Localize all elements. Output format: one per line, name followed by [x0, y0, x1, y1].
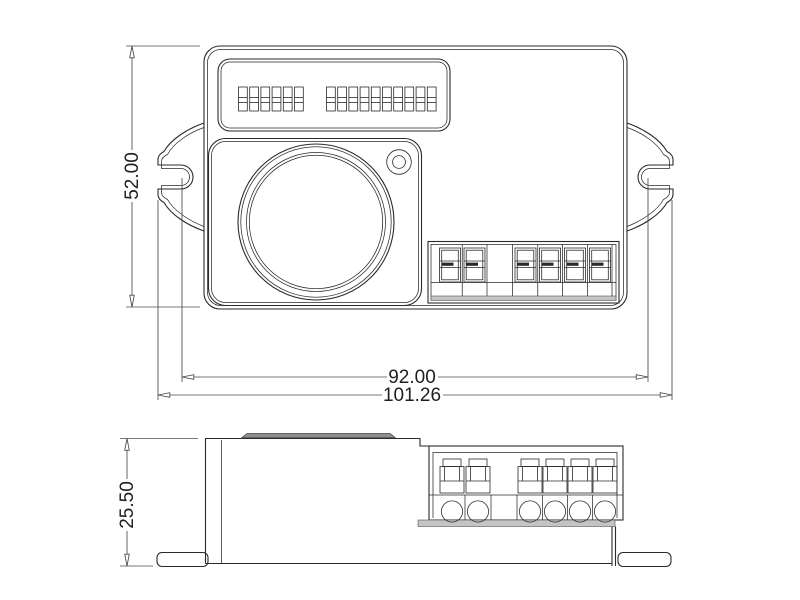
- sensor-lens-outer-circle-inner: [241, 147, 391, 297]
- dip-switch: [416, 87, 425, 111]
- side-top-gasket: [242, 434, 395, 438]
- terminal-block-inner: [431, 245, 616, 301]
- side-push-terminals: [440, 459, 617, 493]
- terminal-block-shade-strip: [431, 296, 616, 301]
- push-terminal-body: [440, 467, 464, 494]
- push-terminal-body: [593, 467, 617, 494]
- mounting-ear-left-inner: [162, 128, 205, 227]
- side-terminal-dividers: [465, 495, 593, 520]
- push-terminal-cap: [521, 459, 539, 467]
- body-outline: [204, 46, 627, 309]
- push-terminal-body: [568, 467, 592, 494]
- side-wire-holes: [441, 501, 615, 522]
- mounting-flange-left: [157, 553, 208, 567]
- wire-entry-hole: [519, 501, 540, 522]
- push-terminal-cap: [571, 459, 589, 467]
- side-right-wall: [612, 527, 616, 567]
- dip-switch: [383, 87, 392, 111]
- dip-switch: [283, 87, 292, 111]
- dip-switch: [272, 87, 281, 111]
- push-terminal-body: [543, 467, 567, 494]
- dip-switch: [349, 87, 358, 111]
- dimension-drawing-page: 52.00 92.00 101.26: [0, 0, 800, 600]
- sensor-lens-inner-circle: [247, 153, 386, 292]
- dip-switch-panel-inner: [221, 62, 447, 128]
- front-view: [158, 46, 673, 309]
- dip-switch: [405, 87, 414, 111]
- dip-switch: [327, 87, 336, 111]
- dip-switch: [394, 87, 403, 111]
- wire-entry-hole: [594, 501, 615, 522]
- dimension-label-overall-width: 101.26: [383, 385, 441, 406]
- push-terminal-cap: [546, 459, 564, 467]
- wire-entry-hole: [467, 501, 488, 522]
- mounting-ear-left: [158, 123, 204, 231]
- wire-entry-hole: [441, 501, 462, 522]
- side-body-left-and-top-edge: [206, 439, 430, 564]
- wire-entry-hole: [569, 501, 590, 522]
- dimension-label-front-height: 52.00: [122, 152, 143, 200]
- terminal-clamps: [440, 248, 611, 282]
- sensor-lens-outer-circle: [238, 144, 394, 300]
- side-terminal-housing: [429, 446, 623, 520]
- dimension-drawing-canvas: 52.00 92.00 101.26: [0, 0, 800, 600]
- led-indicator-inner: [393, 156, 406, 169]
- sensor-lens-inner-circle-inner: [249, 155, 382, 288]
- push-terminal-cap: [443, 459, 461, 467]
- dimension-label-side-height: 25.50: [117, 481, 138, 529]
- mounting-ear-right: [627, 123, 673, 231]
- push-terminal-body: [518, 467, 542, 494]
- dip-switch: [250, 87, 259, 111]
- dip-switch: [371, 87, 380, 111]
- dimension-mounting-width: 92.00: [182, 178, 648, 388]
- side-view: [157, 434, 671, 567]
- dip-switch: [338, 87, 347, 111]
- dip-switch-panel: [218, 59, 450, 131]
- push-terminal-body: [466, 467, 490, 494]
- dimension-side-height: 25.50: [117, 439, 198, 567]
- push-terminal-cap: [469, 459, 487, 467]
- dip-switch: [295, 87, 304, 111]
- mounting-flange-right: [618, 553, 671, 567]
- dip-switch: [360, 87, 369, 111]
- terminal-block: [428, 242, 619, 304]
- dimension-front-height: 52.00: [122, 46, 200, 307]
- push-terminal-cap: [596, 459, 614, 467]
- wire-entry-hole: [544, 501, 565, 522]
- dip-switch-bank: [239, 87, 437, 111]
- dip-switch: [427, 87, 436, 111]
- led-indicator-outer: [387, 150, 412, 175]
- dip-switch: [261, 87, 270, 111]
- dip-switch: [239, 87, 248, 111]
